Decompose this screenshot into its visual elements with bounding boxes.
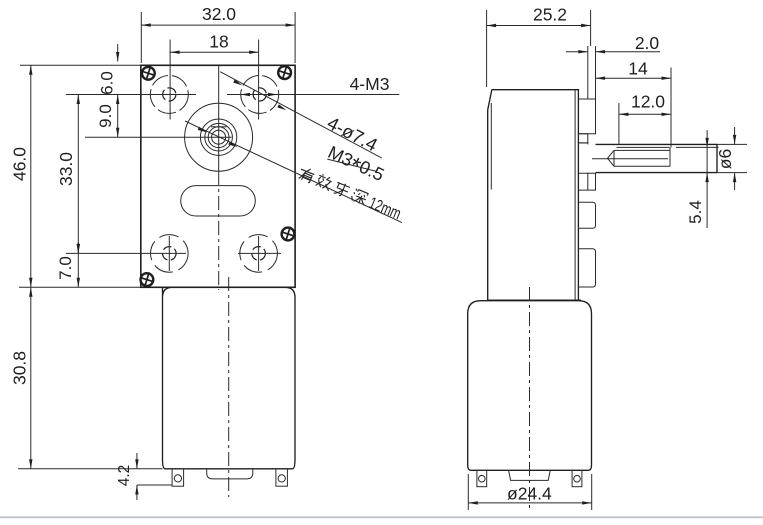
svg-text:4-M3: 4-M3 xyxy=(350,74,390,94)
svg-text:7.0: 7.0 xyxy=(56,256,75,280)
svg-text:14: 14 xyxy=(628,59,648,79)
svg-text:9.0: 9.0 xyxy=(96,104,115,128)
svg-text:33.0: 33.0 xyxy=(56,152,76,186)
svg-text:5.4: 5.4 xyxy=(686,200,705,224)
svg-text:18: 18 xyxy=(209,32,228,52)
svg-text:12.0: 12.0 xyxy=(631,92,665,112)
svg-text:ø24.4: ø24.4 xyxy=(507,484,552,504)
svg-text:ø6: ø6 xyxy=(715,149,735,169)
svg-text:6.0: 6.0 xyxy=(98,71,117,95)
svg-text:4.2: 4.2 xyxy=(116,465,133,487)
svg-text:30.8: 30.8 xyxy=(10,351,30,385)
svg-text:25.2: 25.2 xyxy=(533,5,567,25)
svg-text:46.0: 46.0 xyxy=(10,147,30,181)
svg-text:32.0: 32.0 xyxy=(202,4,236,24)
svg-text:2.0: 2.0 xyxy=(635,33,660,53)
